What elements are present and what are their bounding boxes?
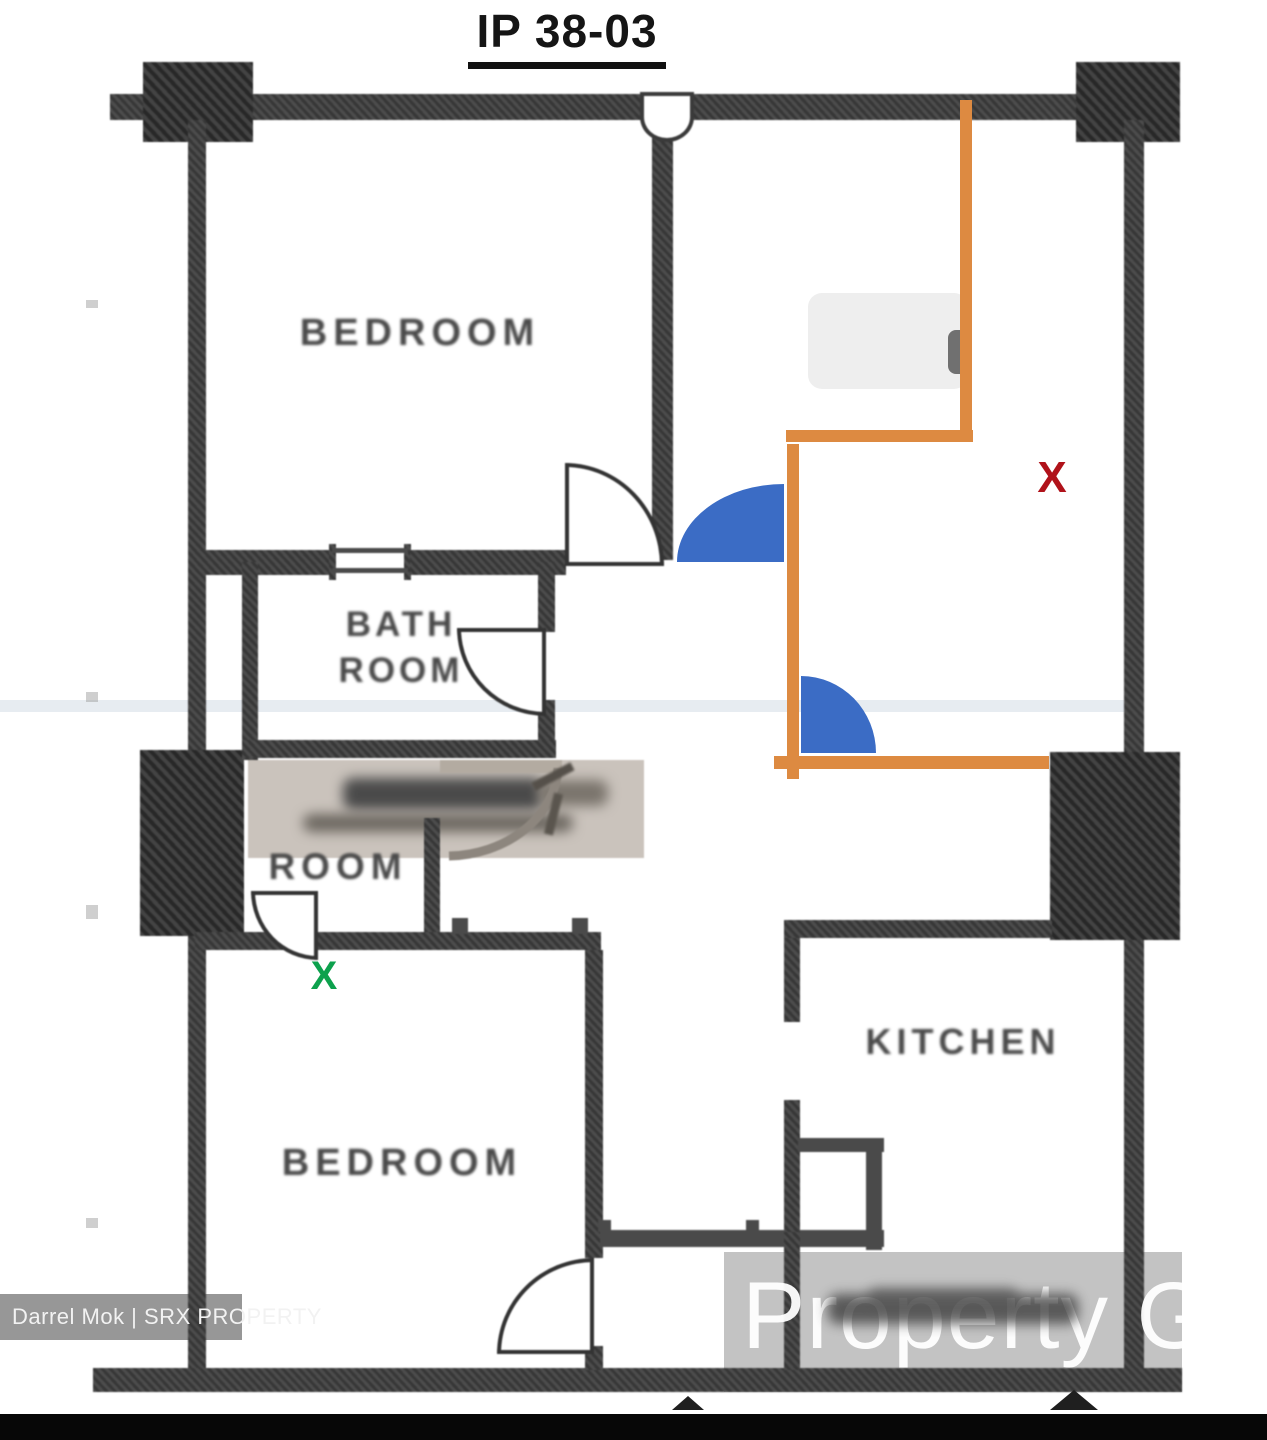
pipe-notch — [640, 92, 694, 142]
bathroom-label-line2: ROOM — [339, 651, 464, 690]
bedroom1-door-swing — [565, 463, 664, 566]
blurred-text-blob — [868, 1288, 1018, 1306]
door-frame-tick — [598, 1220, 611, 1232]
wall-bathroom-right-up — [538, 562, 555, 632]
wall-hall-bottom — [600, 1230, 884, 1247]
window-line — [332, 548, 408, 553]
wall-bedroom1-bottom-left — [195, 550, 335, 575]
plan-title-text: IP 38-03 — [468, 4, 665, 69]
room-label-bedroom-top: BEDROOM — [280, 312, 560, 355]
bathroom-label-line1: BATH — [346, 605, 457, 644]
wall-interior-vertical — [652, 120, 673, 560]
column-left-middle — [140, 750, 244, 936]
room-label-bathroom: BATH ROOM — [301, 602, 501, 694]
room-label-bedroom-bottom: BEDROOM — [261, 1142, 543, 1185]
orange-line-vertical-left — [787, 444, 799, 779]
orange-line-vertical-top — [960, 100, 972, 442]
wall-bathroom-left — [242, 562, 258, 760]
door-frame-tick — [746, 1220, 759, 1232]
scanned-plan-layer: BEDROOM BATH ROOM ROOM BEDROOM KITCHEN — [0, 0, 1267, 1440]
bottom-black-bar — [0, 1414, 1267, 1440]
bottom-arrow-marker — [1050, 1390, 1098, 1410]
watermark-right-smudge — [828, 1288, 1084, 1334]
wall-bedroom2-top — [195, 932, 601, 950]
wall-kitchen-top — [784, 920, 1052, 938]
whiteout-patch — [808, 293, 968, 389]
column-right-middle — [1050, 752, 1180, 940]
wall-left-upper — [188, 120, 206, 752]
wall-bottom — [93, 1368, 1182, 1392]
wall-kitchen-shaft-right — [866, 1138, 882, 1250]
bedroom2-door-swing — [497, 1258, 594, 1354]
wall-right — [1124, 120, 1144, 1372]
wall-bedroom2-right-upper — [585, 950, 603, 1258]
green-x-mark: X — [300, 956, 348, 996]
door-frame-tick — [572, 918, 588, 934]
bottom-arrow-marker — [672, 1396, 704, 1410]
orange-line-horizontal-mid — [786, 430, 973, 442]
room-label-store: ROOM — [240, 846, 436, 888]
wall-kitchen-left-b — [784, 1100, 800, 1232]
door-frame-tick — [452, 918, 468, 934]
floor-plan-image: BEDROOM BATH ROOM ROOM BEDROOM KITCHEN X… — [0, 0, 1267, 1440]
wall-kitchen-left-a — [784, 938, 800, 1022]
red-x-mark: X — [1026, 456, 1078, 500]
window-line — [332, 568, 408, 573]
room-label-kitchen: KITCHEN — [838, 1021, 1088, 1063]
plan-title: IP 38-03 — [407, 4, 727, 69]
watermark-left-text: Darrel Mok | SRX PROPERTY — [12, 1304, 322, 1330]
orange-line-horizontal-bottom — [774, 756, 1049, 769]
